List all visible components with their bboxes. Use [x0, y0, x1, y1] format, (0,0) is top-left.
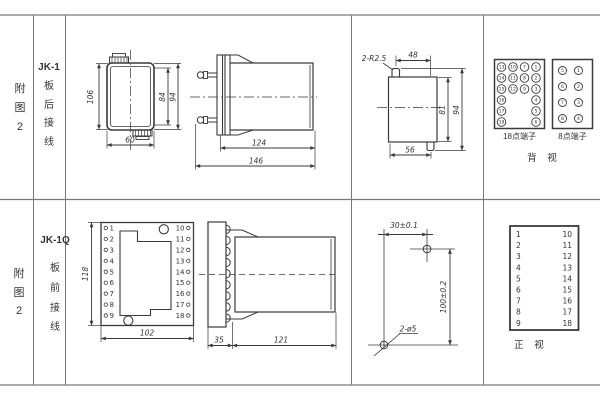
- table-number-right: 11: [562, 241, 572, 250]
- terminal-bump: [226, 281, 230, 289]
- terminal-number: 3: [110, 246, 114, 254]
- terminal-number: 4: [577, 116, 580, 122]
- terminal-number: 8: [110, 301, 114, 309]
- dim-102: 102: [140, 329, 155, 338]
- terminal-dot: [187, 259, 190, 262]
- terminal-number: 17: [176, 301, 185, 309]
- table-number-right: 14: [562, 274, 572, 283]
- table-number-left: 5: [516, 274, 521, 283]
- table-number-left: 8: [516, 308, 521, 317]
- table-number-right: 12: [562, 252, 572, 261]
- terminal-number: 1: [577, 68, 580, 74]
- terminal-number: 8: [561, 116, 564, 122]
- row1-figure-char: 图: [15, 101, 26, 114]
- technical-drawing-sheet: 附 图 2 JK-1 板 后 接 线: [0, 0, 600, 400]
- terminal-18-circles: 131415161718101112789123456: [497, 63, 540, 127]
- row1-figure-char: 2: [17, 121, 23, 133]
- terminal-dot: [187, 270, 190, 273]
- row2-figure-char: 附: [14, 266, 25, 280]
- terminal-bump: [226, 247, 230, 255]
- terminal-number: 18: [176, 312, 185, 320]
- terminal-number: 14: [176, 268, 185, 276]
- table-number-right: 15: [562, 286, 572, 295]
- table-number-left: 7: [516, 297, 521, 306]
- table-number-right: 13: [562, 263, 572, 272]
- row2-figure-char: 图: [14, 286, 25, 299]
- dim-35: 35: [214, 336, 224, 345]
- row1-figure-char: 附: [15, 81, 26, 95]
- terminal-dot: [187, 314, 190, 317]
- dim-124: 124: [252, 139, 267, 148]
- terminal-dot: [187, 237, 190, 240]
- terminal-number: 3: [535, 87, 538, 93]
- terminal-bump: [226, 314, 230, 322]
- terminal-number: 15: [499, 87, 505, 93]
- row2-wiring-char: 接: [50, 301, 60, 314]
- terminal-number: 2: [110, 235, 114, 243]
- row2-wiring-char: 板: [50, 261, 60, 274]
- dim-84: 84: [158, 92, 167, 102]
- terminal-number: 9: [523, 87, 526, 93]
- terminal-dot: [104, 292, 107, 295]
- dim-106: 106: [86, 90, 95, 105]
- terminal-dot: [187, 303, 190, 306]
- dim-81: 81: [438, 105, 447, 115]
- terminal-number: 10: [176, 225, 185, 233]
- terminal-number: 1: [110, 225, 114, 233]
- terminal-dot: [104, 281, 107, 284]
- terminal-bump: [226, 303, 230, 311]
- dim-94: 94: [169, 92, 178, 102]
- terminal-dot: [104, 270, 107, 273]
- terminal-dot: [104, 226, 107, 229]
- table-number-left: 6: [516, 286, 521, 295]
- dim-60: 60: [125, 136, 135, 145]
- terminal-18-label: 18点端子: [503, 131, 536, 141]
- terminal-dot: [187, 281, 190, 284]
- dim-56: 56: [405, 146, 415, 155]
- dim-100: 100±0.2: [439, 281, 448, 314]
- table-number-right: 18: [562, 319, 572, 328]
- terminal-number: 12: [510, 87, 516, 93]
- terminal-number: 17: [499, 109, 505, 115]
- terminal-number: 6: [110, 279, 115, 287]
- note-2-r2.5: 2-R2.5: [362, 54, 387, 63]
- terminal-number: 10: [510, 65, 516, 71]
- terminal-dot: [104, 259, 107, 262]
- terminal-number: 16: [176, 290, 185, 298]
- side-view-terminal-bumps: [226, 225, 230, 322]
- row1-wiring-char: 板: [44, 79, 54, 92]
- terminal-number: 9: [110, 312, 114, 320]
- terminal-number: 13: [499, 65, 505, 71]
- terminal-number: 5: [110, 268, 114, 276]
- table-number-right: 10: [562, 230, 572, 239]
- terminal-number: 12: [176, 246, 185, 254]
- front-view-label: 正 视: [514, 339, 548, 351]
- terminal-table-numbers: 123456789101112131415161718: [516, 230, 572, 328]
- terminal-8-circles: 56781234: [559, 67, 583, 123]
- row1-wiring-char: 线: [44, 135, 54, 148]
- terminal-number: 4: [535, 98, 538, 104]
- table-number-right: 17: [562, 308, 572, 317]
- terminal-number: 18: [499, 120, 505, 126]
- row2-model-label: JK-1Q: [40, 235, 70, 246]
- terminal-bump: [226, 258, 230, 266]
- terminal-8-label: 8点端子: [558, 131, 586, 141]
- row2-wiring-char: 前: [50, 281, 60, 294]
- dim-30: 30±0.1: [390, 221, 418, 230]
- terminal-bump: [226, 236, 230, 244]
- terminal-number: 4: [110, 257, 115, 265]
- terminal-number: 8: [523, 76, 526, 82]
- row1-wiring-char: 后: [44, 99, 54, 111]
- terminal-number: 13: [176, 257, 185, 265]
- row1-model-label: JK-1: [38, 62, 60, 73]
- table-number-left: 4: [516, 263, 521, 272]
- row2-figure-char: 2: [16, 305, 22, 317]
- terminal-number: 11: [510, 76, 516, 82]
- terminal-dot: [104, 314, 107, 317]
- table-number-left: 9: [516, 319, 521, 328]
- terminal-number: 15: [176, 279, 185, 287]
- drawing-front-side: [199, 222, 338, 349]
- terminal-number: 2: [577, 84, 580, 90]
- terminal-dot: [187, 248, 190, 251]
- drawing-case-side: [190, 55, 317, 170]
- terminal-dot: [104, 237, 107, 240]
- terminal-number: 7: [110, 290, 114, 298]
- row1-wiring-char: 接: [44, 116, 54, 129]
- terminal-bump: [226, 292, 230, 300]
- back-view-label: 背 视: [527, 152, 561, 164]
- terminal-number: 11: [176, 235, 185, 243]
- terminal-number: 7: [523, 65, 526, 71]
- terminal-number: 6: [561, 84, 564, 90]
- terminal-dot: [104, 303, 107, 306]
- terminal-number: 2: [535, 76, 538, 82]
- dim-146: 146: [249, 157, 264, 166]
- terminal-dot: [104, 248, 107, 251]
- terminal-number: 5: [535, 109, 538, 115]
- row2-wiring-char: 线: [50, 320, 60, 333]
- terminal-number: 5: [561, 68, 564, 74]
- drawing-svg: 附 图 2 JK-1 板 后 接 线: [0, 0, 600, 400]
- table-number-left: 3: [516, 252, 521, 261]
- dim-48: 48: [408, 51, 418, 60]
- terminal-number: 3: [577, 100, 580, 106]
- terminal-number: 1: [535, 65, 538, 71]
- front-view-terminals: 123456789101112131415161718: [104, 225, 190, 321]
- terminal-number: 7: [561, 100, 564, 106]
- table-number-left: 2: [516, 241, 521, 250]
- dim-118: 118: [81, 267, 90, 282]
- terminal-number: 14: [499, 76, 505, 82]
- terminal-number: 16: [499, 98, 505, 104]
- dim-121: 121: [274, 336, 288, 345]
- dim-94-full: 94: [452, 105, 461, 115]
- terminal-bump: [226, 225, 230, 233]
- table-number-left: 1: [516, 230, 521, 239]
- note-2-d5: 2-ø5: [400, 325, 417, 334]
- table-number-right: 16: [562, 297, 572, 306]
- terminal-dot: [187, 292, 190, 295]
- terminal-dot: [187, 226, 190, 229]
- terminal-number: 6: [535, 120, 538, 126]
- terminal-bump: [226, 270, 230, 278]
